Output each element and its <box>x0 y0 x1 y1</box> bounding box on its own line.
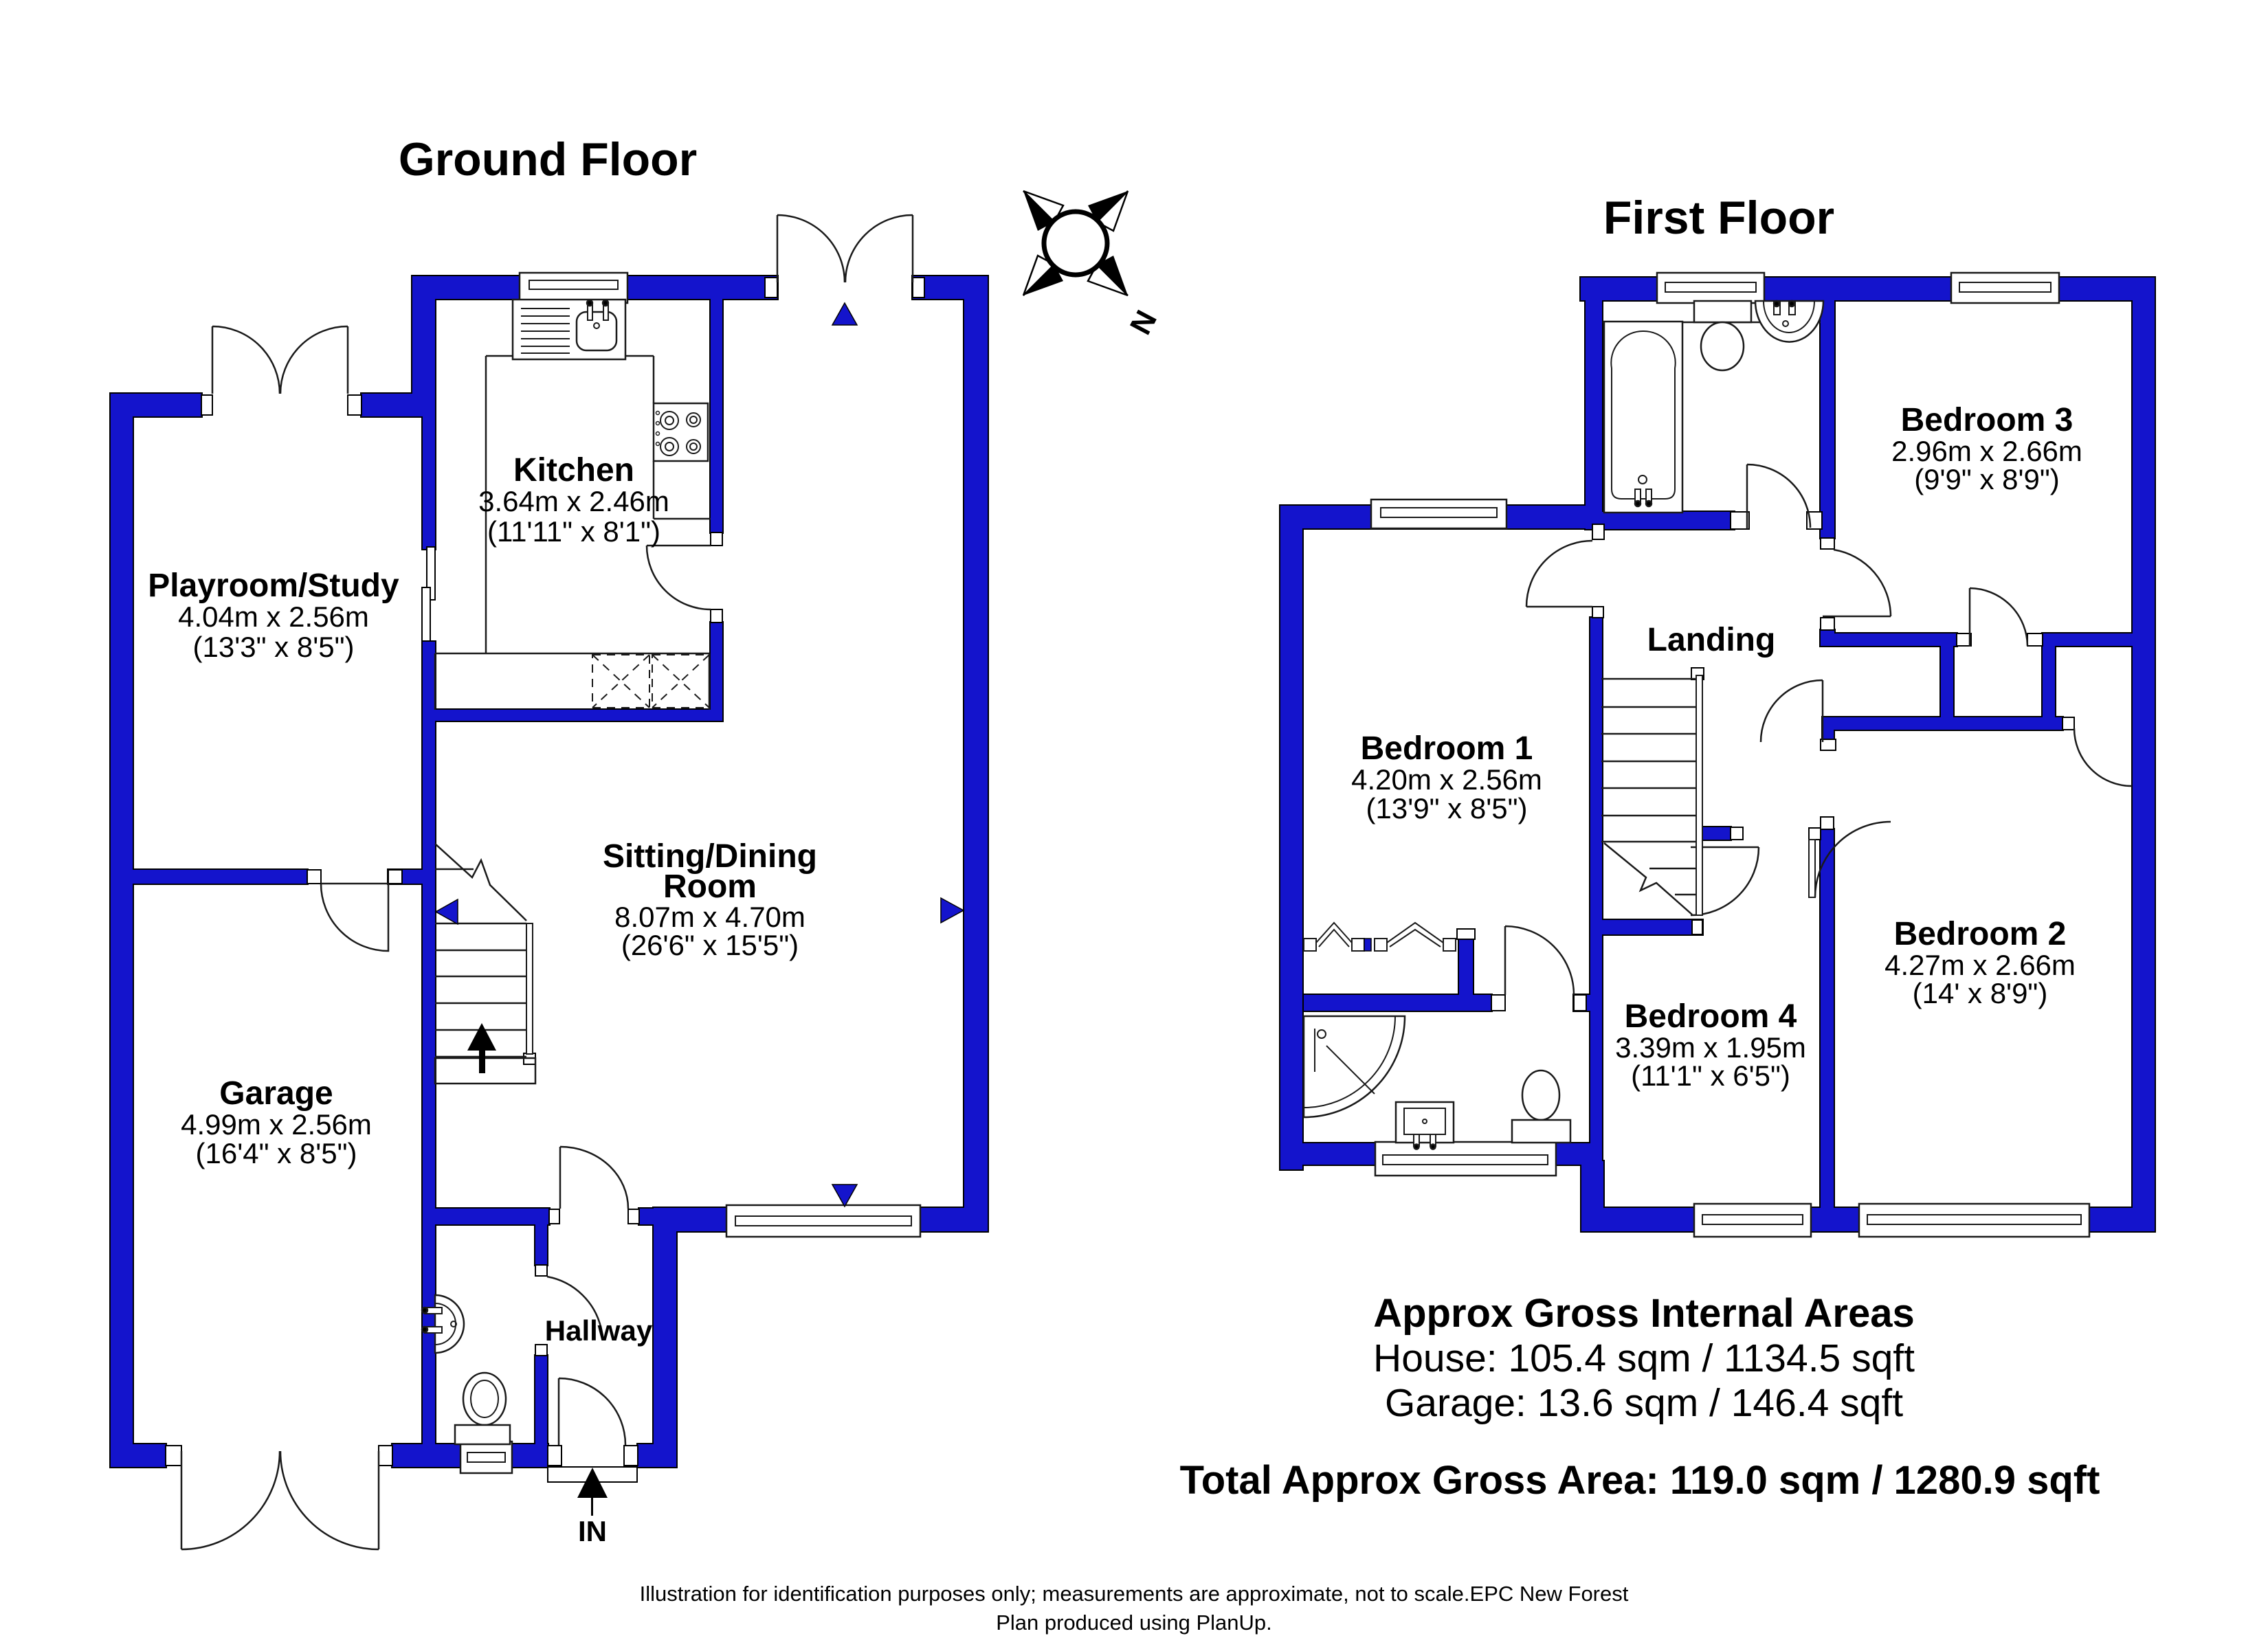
svg-text:Hallway: Hallway <box>545 1314 653 1347</box>
svg-text:(11'11" x 8'1"): (11'11" x 8'1") <box>487 515 660 548</box>
svg-text:2.96m x 2.66m: 2.96m x 2.66m <box>1891 435 2082 467</box>
svg-text:(14' x 8'9"): (14' x 8'9") <box>1913 977 2048 1009</box>
svg-text:Illustration for identificatio: Illustration for identification purposes… <box>640 1582 1629 1606</box>
svg-text:Total Approx Gross Area: 119.0: Total Approx Gross Area: 119.0 sqm / 128… <box>1180 1458 2100 1503</box>
svg-text:4.99m x 2.56m: 4.99m x 2.56m <box>181 1108 372 1141</box>
svg-text:3.64m x 2.46m: 3.64m x 2.46m <box>478 485 669 517</box>
svg-text:(9'9" x 8'9"): (9'9" x 8'9") <box>1914 463 2060 495</box>
svg-text:(13'9" x 8'5"): (13'9" x 8'5") <box>1366 792 1528 824</box>
svg-text:Bedroom 2: Bedroom 2 <box>1894 916 2067 952</box>
svg-text:3.39m x 1.95m: 3.39m x 1.95m <box>1615 1031 1806 1064</box>
svg-text:(11'1" x 6'5"): (11'1" x 6'5") <box>1631 1059 1790 1092</box>
svg-text:Ground Floor: Ground Floor <box>399 133 697 186</box>
svg-text:Bedroom 4: Bedroom 4 <box>1625 998 1797 1035</box>
svg-text:House: 105.4 sqm / 1134.5 sqft: House: 105.4 sqm / 1134.5 sqft <box>1373 1336 1915 1380</box>
svg-text:Landing: Landing <box>1647 622 1776 658</box>
svg-text:Room: Room <box>663 868 757 905</box>
svg-text:(13'3" x 8'5"): (13'3" x 8'5") <box>193 631 355 663</box>
svg-text:(16'4" x 8'5"): (16'4" x 8'5") <box>196 1137 357 1169</box>
svg-text:Garage: Garage <box>219 1075 333 1112</box>
svg-text:4.04m x 2.56m: 4.04m x 2.56m <box>178 601 369 633</box>
svg-text:First Floor: First Floor <box>1603 192 1834 244</box>
svg-text:Garage: 13.6 sqm / 146.4 sqft: Garage: 13.6 sqm / 146.4 sqft <box>1385 1381 1903 1425</box>
svg-text:(26'6" x 15'5"): (26'6" x 15'5") <box>621 929 799 961</box>
svg-text:Approx Gross Internal Areas: Approx Gross Internal Areas <box>1373 1291 1915 1336</box>
svg-text:IN: IN <box>578 1515 607 1547</box>
svg-text:Plan produced using PlanUp.: Plan produced using PlanUp. <box>996 1611 1272 1635</box>
svg-text:Kitchen: Kitchen <box>513 452 634 489</box>
svg-text:8.07m x 4.70m: 8.07m x 4.70m <box>614 901 805 933</box>
svg-text:Bedroom 3: Bedroom 3 <box>1901 402 2074 438</box>
svg-text:4.27m x 2.66m: 4.27m x 2.66m <box>1885 949 2076 981</box>
svg-text:Bedroom 1: Bedroom 1 <box>1361 730 1533 767</box>
svg-text:4.20m x 2.56m: 4.20m x 2.56m <box>1351 763 1542 796</box>
svg-text:Playroom/Study: Playroom/Study <box>148 568 399 604</box>
